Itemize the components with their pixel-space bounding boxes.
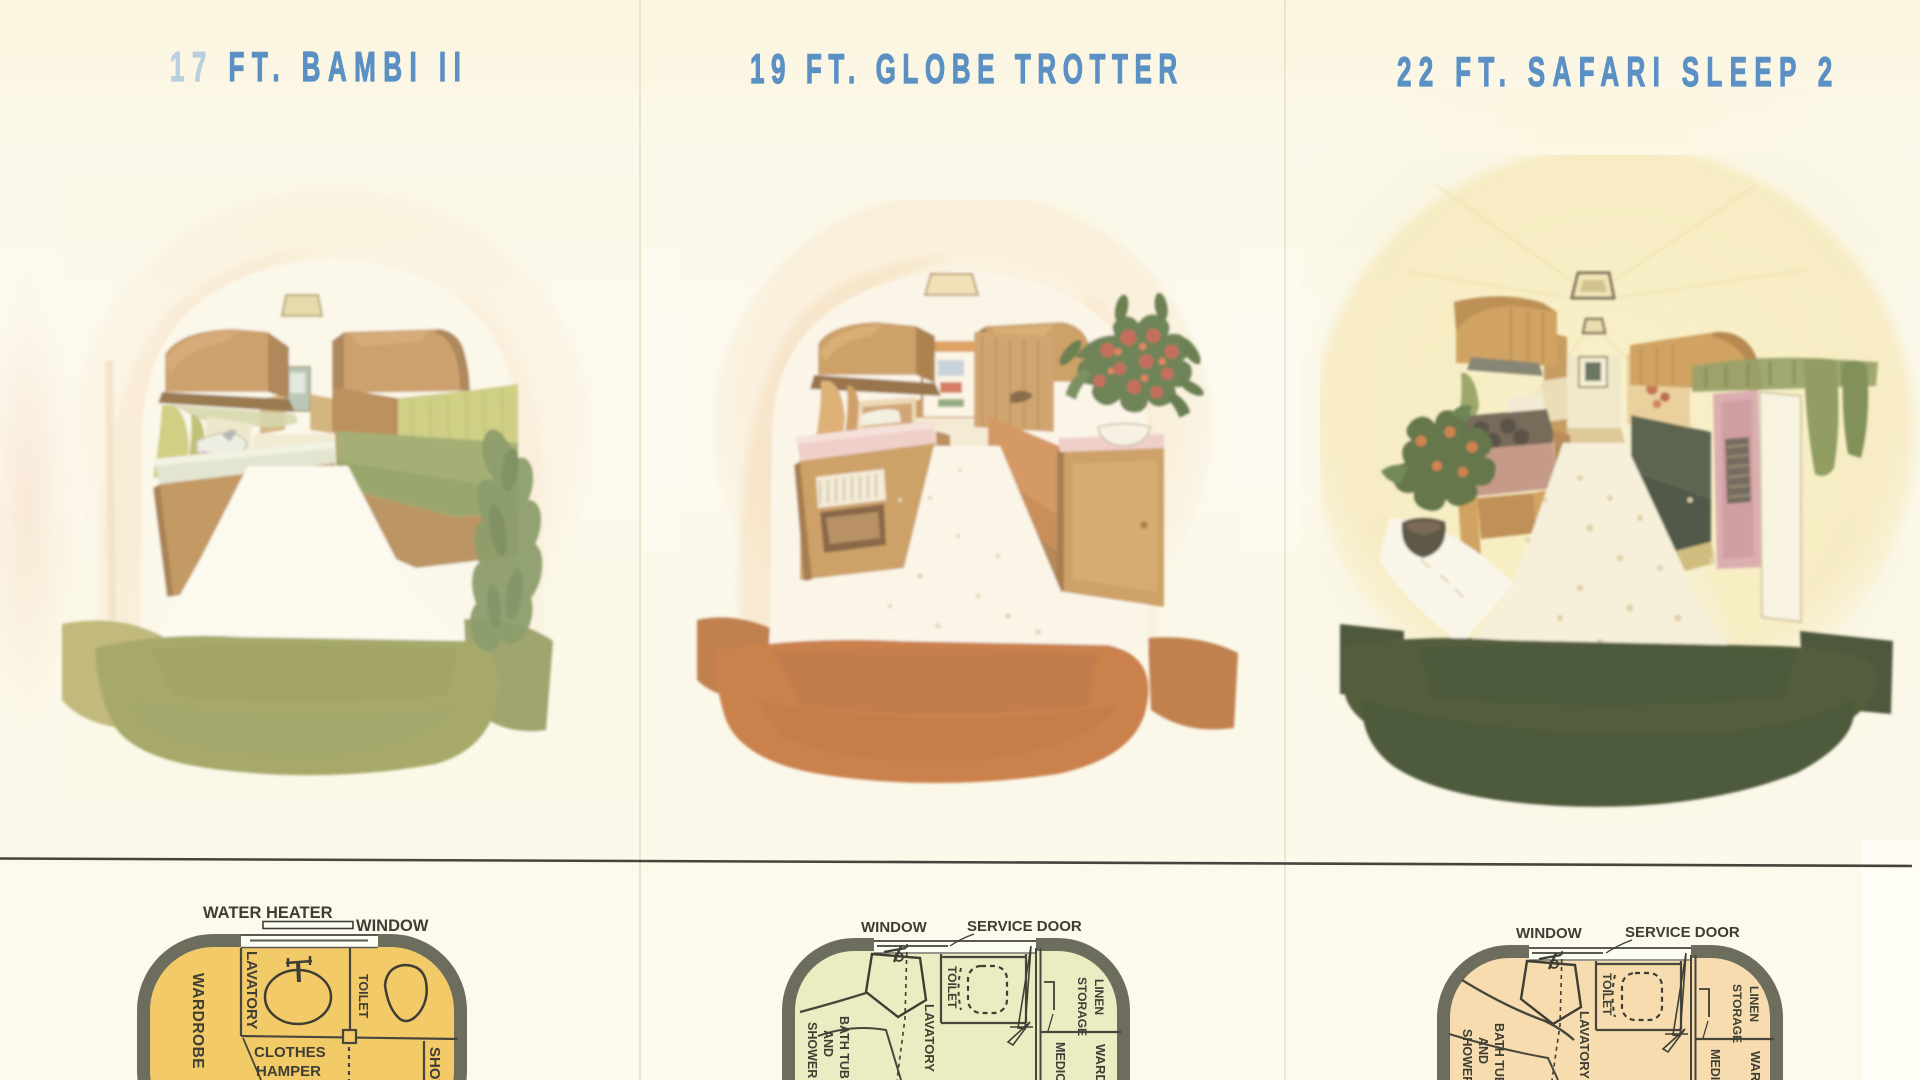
svg-text:TOILET: TOILET bbox=[945, 966, 959, 1009]
svg-text:SHOWER: SHOWER bbox=[426, 1047, 443, 1080]
svg-text:STORAGE: STORAGE bbox=[1075, 977, 1089, 1036]
svg-text:WARDROBE: WARDROBE bbox=[1093, 1044, 1108, 1080]
svg-text:LINEN: LINEN bbox=[1092, 979, 1106, 1015]
svg-text:LAVATORY: LAVATORY bbox=[922, 1004, 937, 1072]
svg-text:HAMPER: HAMPER bbox=[256, 1063, 321, 1080]
svg-text:WARDROBE: WARDROBE bbox=[1748, 1051, 1763, 1080]
svg-text:LAVATORY: LAVATORY bbox=[243, 951, 260, 1029]
svg-text:LINEN: LINEN bbox=[1747, 986, 1761, 1022]
svg-text:SERVICE DOOR: SERVICE DOOR bbox=[967, 918, 1082, 935]
svg-text:WINDOW: WINDOW bbox=[1516, 925, 1583, 942]
svg-text:TOILET: TOILET bbox=[1600, 973, 1614, 1016]
svg-text:MEDICINE: MEDICINE bbox=[1708, 1049, 1722, 1080]
svg-text:BATH TUB: BATH TUB bbox=[837, 1016, 851, 1079]
svg-text:STORAGE: STORAGE bbox=[1730, 984, 1744, 1043]
svg-text:WATER HEATER: WATER HEATER bbox=[203, 904, 333, 922]
svg-text:WINDOW: WINDOW bbox=[356, 917, 429, 935]
svg-text:SHOWER: SHOWER bbox=[1460, 1029, 1474, 1080]
svg-text:AND: AND bbox=[821, 1030, 835, 1057]
svg-text:SHOWER: SHOWER bbox=[805, 1022, 819, 1078]
svg-text:LAVATORY: LAVATORY bbox=[1577, 1011, 1592, 1079]
svg-text:CLOTHES: CLOTHES bbox=[254, 1044, 326, 1061]
svg-text:MEDICINE: MEDICINE bbox=[1053, 1042, 1067, 1080]
svg-text:SERVICE DOOR: SERVICE DOOR bbox=[1625, 924, 1740, 941]
svg-text:AND: AND bbox=[1476, 1037, 1490, 1064]
svg-text:BATH TUB: BATH TUB bbox=[1492, 1023, 1506, 1080]
svg-text:WINDOW: WINDOW bbox=[861, 919, 928, 936]
svg-text:TOILET: TOILET bbox=[356, 974, 370, 1019]
svg-text:WARDROBE: WARDROBE bbox=[189, 973, 206, 1069]
